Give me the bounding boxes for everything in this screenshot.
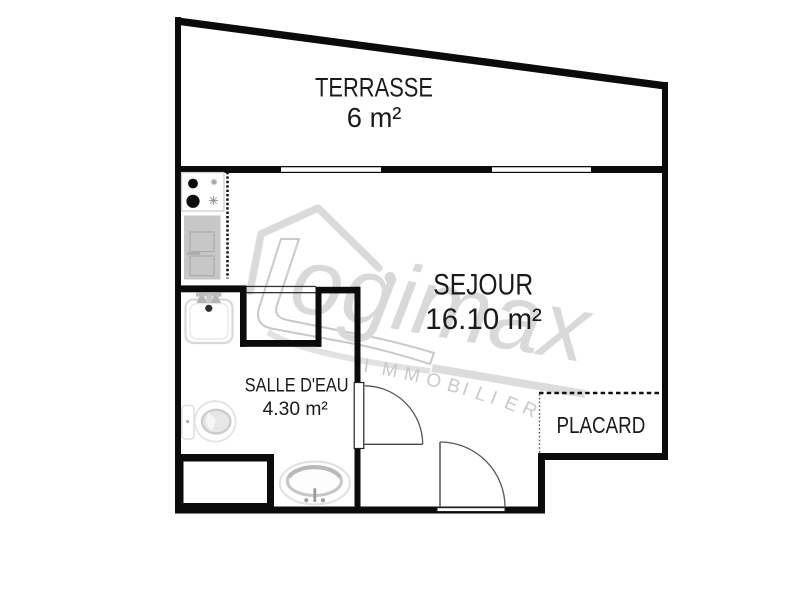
svg-text:4.30 m²: 4.30 m²: [263, 398, 329, 420]
svg-text:SEJOUR: SEJOUR: [433, 269, 533, 302]
svg-text:TERRASSE: TERRASSE: [315, 72, 433, 102]
svg-text:SALLE D'EAU: SALLE D'EAU: [245, 375, 349, 396]
svg-text:16.10 m²: 16.10 m²: [425, 303, 542, 336]
svg-text:6 m²: 6 m²: [347, 102, 402, 133]
svg-text:PLACARD: PLACARD: [557, 412, 646, 438]
